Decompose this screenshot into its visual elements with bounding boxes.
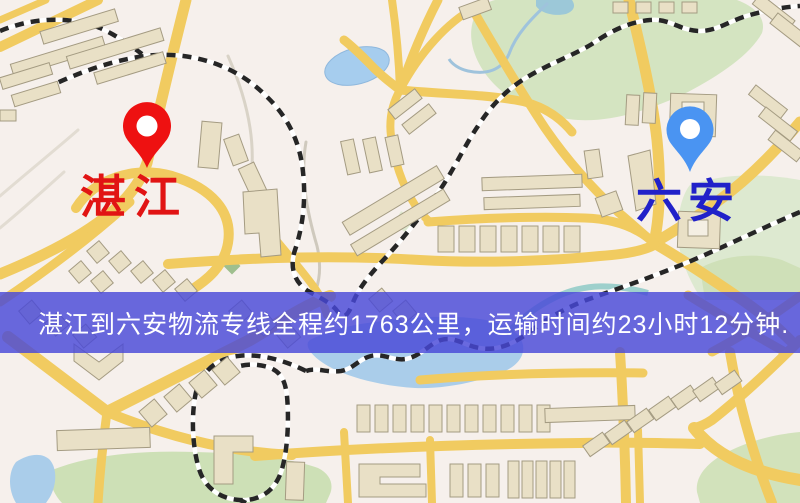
origin-city-label: 湛江 (80, 174, 188, 220)
map-screenshot: 湛江 六安 湛江到六安物流专线全程约1763公里，运输时间约23小时12分钟. (0, 0, 800, 503)
route-info-text: 湛江到六安物流专线全程约1763公里，运输时间约23小时12分钟. (0, 305, 789, 341)
destination-pin-hole (680, 119, 700, 139)
origin-pin-hole (137, 116, 158, 137)
map-canvas[interactable] (0, 0, 800, 503)
route-info-banner: 湛江到六安物流专线全程约1763公里，运输时间约23小时12分钟. (0, 292, 800, 353)
destination-city-label: 六安 (636, 178, 740, 224)
